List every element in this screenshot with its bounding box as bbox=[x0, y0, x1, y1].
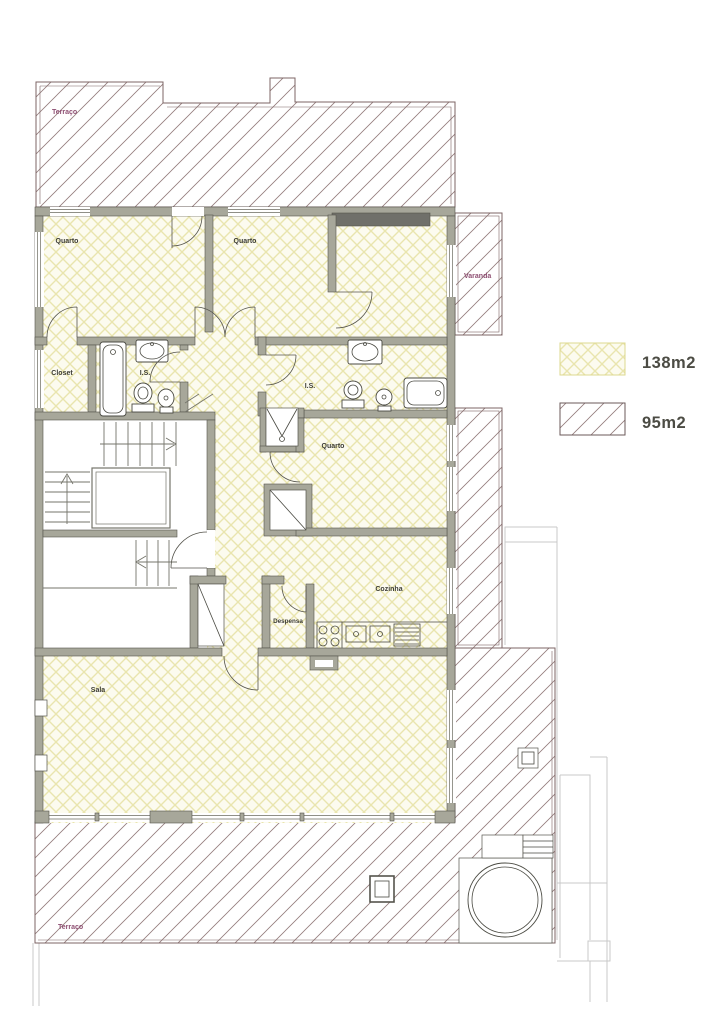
legend-terrace-area: 95m2 bbox=[642, 414, 686, 432]
bedroom3-label: Quarto bbox=[322, 443, 345, 450]
bathroom1-label: I.S. bbox=[140, 370, 151, 377]
terrace-steps bbox=[482, 835, 523, 858]
structural-wall-band bbox=[332, 213, 430, 226]
terrace-door-gap bbox=[172, 207, 204, 216]
legend-apartment-area: 138m2 bbox=[642, 354, 696, 372]
bathtub-icon bbox=[100, 342, 126, 416]
entrance-door-gap bbox=[207, 530, 215, 568]
wall-niche bbox=[35, 700, 47, 716]
jacuzzi-icon bbox=[468, 863, 542, 937]
sink-icon bbox=[136, 340, 168, 362]
toilet-icon bbox=[132, 383, 154, 412]
bedroom1-label: Quarto bbox=[56, 238, 79, 245]
shower-icon bbox=[266, 408, 298, 446]
legend-swatch-terrace bbox=[560, 403, 625, 435]
floor-plan-svg: Terraço Varanda Terraço bbox=[0, 0, 723, 1024]
terrace-bottom-label: Terraço bbox=[58, 924, 83, 931]
legend-swatch-apartment bbox=[560, 343, 625, 375]
living-room-label: Sala bbox=[91, 687, 106, 694]
wardrobe-lower bbox=[198, 584, 224, 646]
kitchen-label: Cozinha bbox=[375, 586, 402, 593]
bedroom2-label: Quarto bbox=[234, 238, 257, 245]
facade-pier bbox=[150, 811, 192, 823]
toilet-icon bbox=[342, 381, 364, 408]
balcony-label: Varanda bbox=[464, 273, 491, 280]
sink-icon bbox=[348, 340, 382, 364]
wall-niche bbox=[35, 755, 47, 771]
terrace-planter bbox=[370, 876, 394, 902]
wardrobe-upper bbox=[270, 490, 306, 530]
bidet-icon bbox=[158, 389, 174, 413]
bathtub-icon bbox=[404, 378, 447, 408]
pantry-label: Despensa bbox=[273, 618, 303, 625]
floor-plan-page: Terraço Varanda Terraço bbox=[0, 0, 723, 1024]
closet-label: Closet bbox=[51, 370, 73, 377]
balcony-varanda-region: Varanda bbox=[455, 213, 502, 335]
legend: 138m2 95m2 bbox=[560, 343, 696, 435]
terrace-top-region: Terraço bbox=[36, 78, 455, 207]
bidet-icon bbox=[376, 389, 392, 411]
elevator-shaft bbox=[92, 468, 170, 528]
bathroom2-label: I.S. bbox=[305, 383, 316, 390]
balcony-strip-region bbox=[455, 408, 502, 648]
terrace-top-label: Terraço bbox=[52, 109, 77, 116]
terrace-column bbox=[518, 748, 538, 768]
